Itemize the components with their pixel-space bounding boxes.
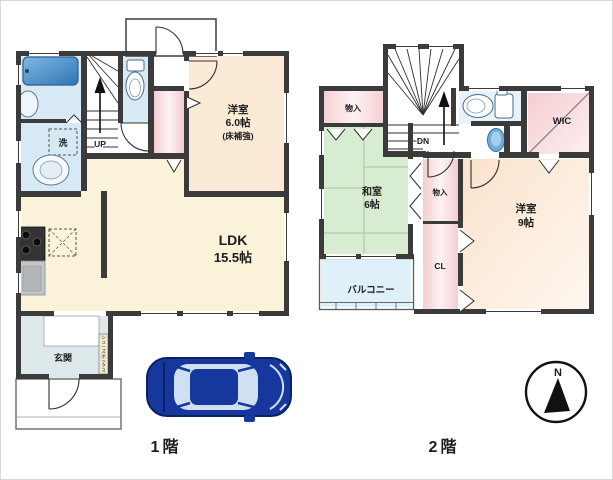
- storage-top-label: 物入: [345, 103, 361, 113]
- entry-porch-bottom: [16, 379, 121, 429]
- ldk-name: LDK: [219, 232, 248, 248]
- bedroom-9-size: 9帖: [518, 216, 535, 229]
- washitsu-size: 6帖: [364, 198, 380, 211]
- compass-north-label: N: [554, 367, 562, 379]
- car-illustration: [144, 351, 294, 423]
- bedroom-6-name: 洋室: [228, 103, 249, 116]
- car-mirror-top: [244, 352, 255, 359]
- compass-needle: [544, 378, 570, 413]
- floor2-label: 2階: [399, 433, 489, 457]
- washbasin-2f: [488, 129, 505, 152]
- toilet-1f: [126, 60, 144, 100]
- balcony-room: [321, 259, 411, 307]
- car-roof: [190, 369, 238, 405]
- laundry-label: 洗: [58, 137, 67, 148]
- floor2-plan: DN: [311, 43, 603, 318]
- floorplan-image: 洗: [0, 0, 613, 480]
- closet-label: CL: [434, 261, 445, 271]
- floor1-label: 1階: [121, 433, 211, 457]
- bedroom-6-size: 6.0帖: [225, 116, 251, 129]
- wic-label: WIC: [553, 116, 572, 127]
- ldk-size: 15.5帖: [214, 250, 252, 265]
- bedroom-9-name: 洋室: [516, 202, 537, 215]
- genkan-label: 玄関: [54, 352, 72, 363]
- balcony-label: バルコニー: [347, 284, 394, 296]
- washitsu-name: 和室: [361, 185, 382, 198]
- stairs-dn-label: DN: [417, 136, 429, 146]
- entry-porch-top: [126, 19, 216, 56]
- bedroom-6-note: (床補強): [222, 131, 253, 141]
- kitchen-counter: [19, 227, 45, 295]
- stairs-up-label: UP: [94, 139, 106, 149]
- washbasin-1f: [33, 155, 69, 185]
- compass: N: [521, 356, 591, 426]
- storage-mid-label: 物入: [433, 187, 448, 197]
- genkan-step: [44, 316, 99, 346]
- car-mirror-bottom: [244, 415, 255, 422]
- shoebox-label: シューズボックス: [101, 335, 106, 373]
